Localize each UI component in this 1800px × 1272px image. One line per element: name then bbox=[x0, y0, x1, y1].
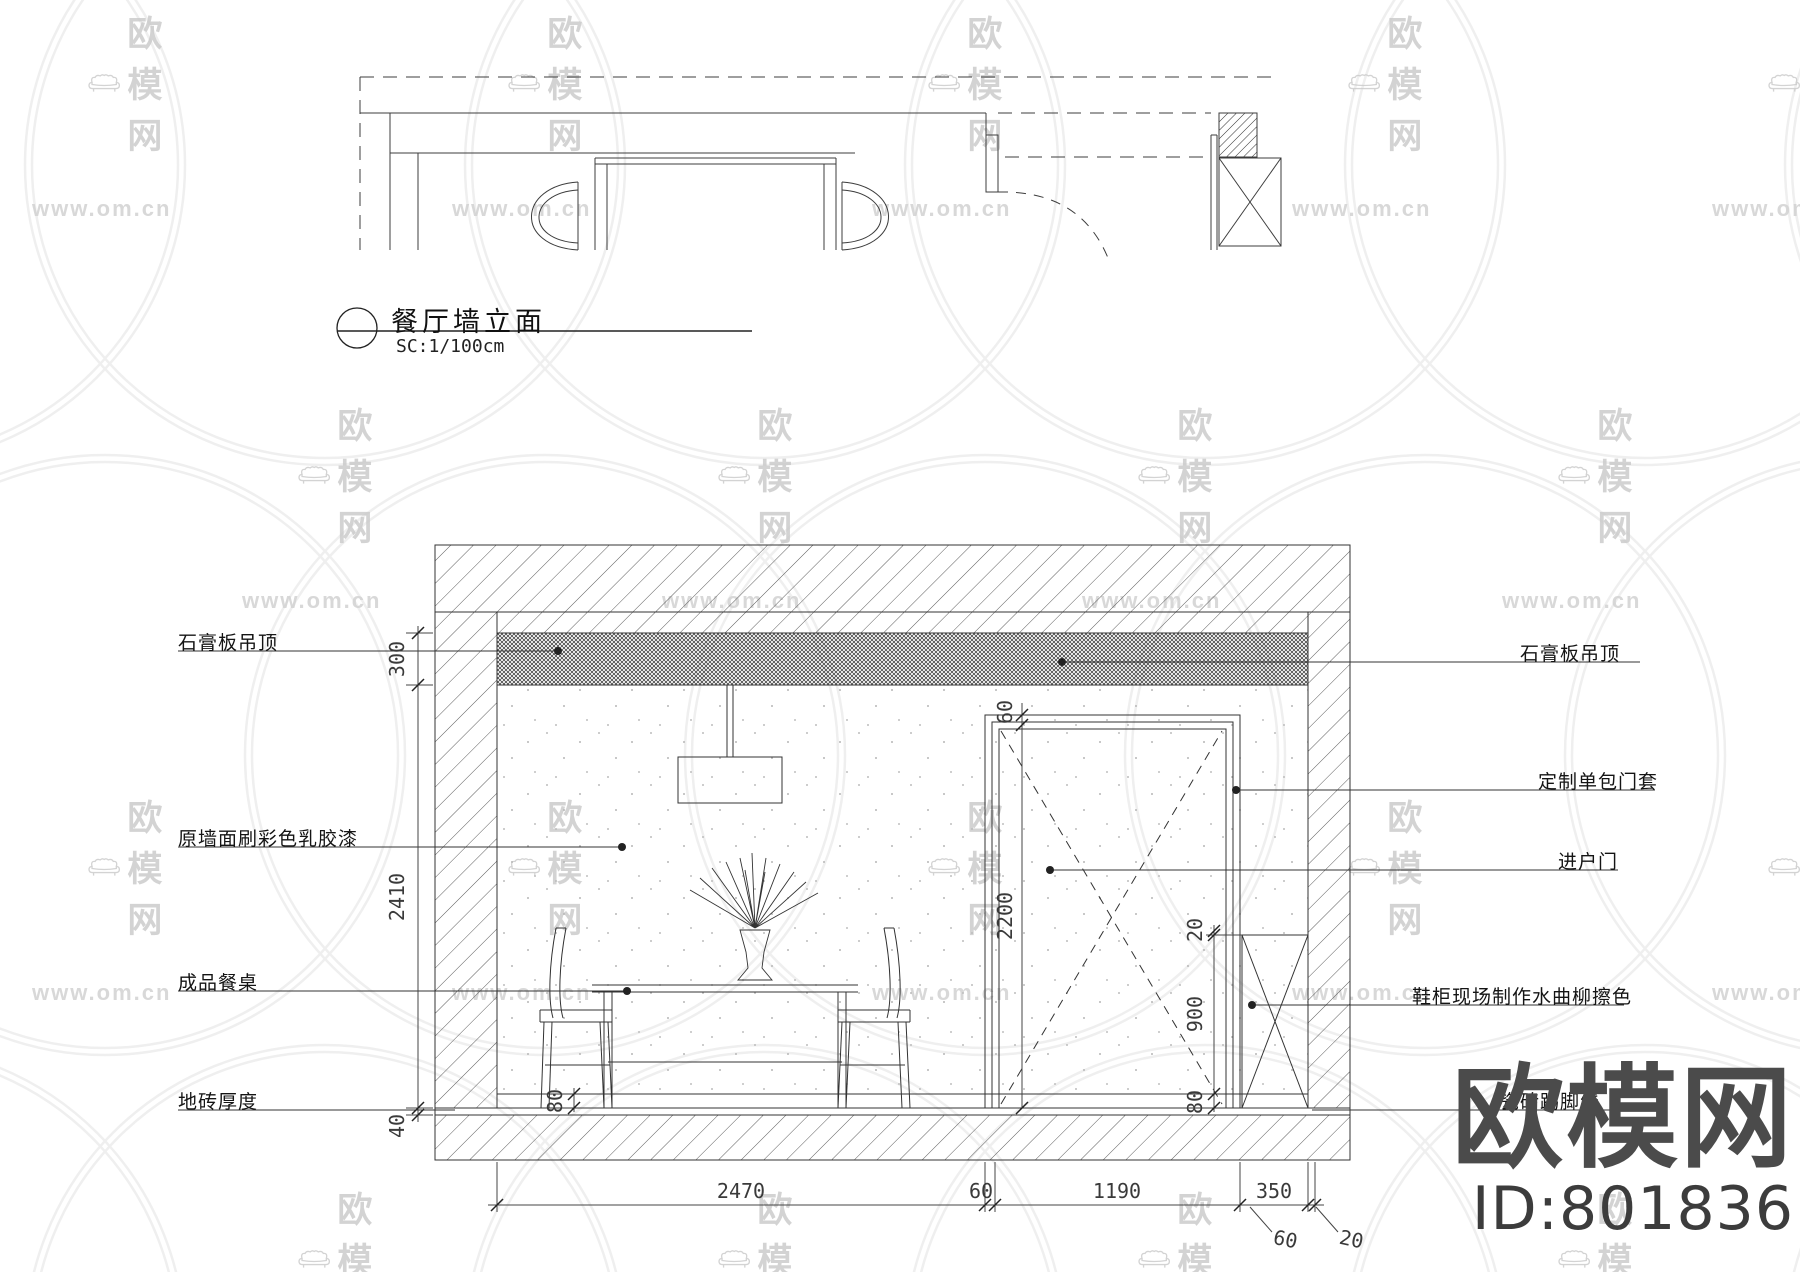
dim-tile-thickness: 40 bbox=[385, 1114, 409, 1138]
plan-chair-right bbox=[842, 182, 889, 250]
label-dining-table: 成品餐桌 bbox=[178, 968, 258, 995]
detail-bubble-icon bbox=[337, 308, 377, 348]
plan-view bbox=[360, 77, 1281, 258]
plan-entry-door bbox=[986, 113, 1108, 258]
dim-skirting-left: 80 bbox=[543, 1089, 567, 1113]
dim-bottom-3: 1190 bbox=[1093, 1179, 1141, 1203]
plan-cabinet-box bbox=[1219, 158, 1281, 246]
top-slab-hatch bbox=[435, 545, 1350, 612]
label-shoe-cabinet: 鞋柜现场制作水曲柳擦色 bbox=[1412, 982, 1632, 1009]
dim-bottom-sub-1: 60 bbox=[1271, 1225, 1300, 1253]
label-wall-paint: 原墙面刷彩色乳胶漆 bbox=[178, 824, 358, 851]
floor-slab-hatch bbox=[435, 1115, 1350, 1160]
dim-bottom-1: 2470 bbox=[717, 1179, 765, 1203]
dim-skirting-right: 80 bbox=[1183, 1090, 1207, 1114]
dim-wall-height: 2410 bbox=[385, 873, 409, 921]
drawing-scale: SC:1/100cm bbox=[396, 336, 504, 357]
dim-bottom-sub-2: 20 bbox=[1337, 1225, 1366, 1253]
plan-chair-left bbox=[531, 182, 578, 250]
left-wall-hatch bbox=[435, 612, 497, 1108]
dim-cabinet-height: 900 bbox=[1183, 996, 1207, 1032]
dim-bottom-4: 350 bbox=[1256, 1179, 1292, 1203]
label-door-casing: 定制单包门套 bbox=[1538, 767, 1658, 794]
drawing-title: 餐厅墙立面 bbox=[391, 300, 546, 339]
gypsum-ceiling-band bbox=[497, 633, 1308, 685]
cad-sheet: 欧模网欧模网欧模网欧模网欧模网欧模网欧模网欧模网欧模网欧模网欧模网欧模网欧模网欧… bbox=[0, 0, 1800, 1272]
dim-door-frame: 60 bbox=[993, 700, 1017, 724]
label-gypsum-ceiling-left: 石膏板吊顶 bbox=[178, 628, 278, 655]
dim-bottom-2: 60 bbox=[969, 1179, 993, 1203]
dim-cabinet-gap: 20 bbox=[1183, 918, 1207, 942]
label-gypsum-ceiling-right: 石膏板吊顶 bbox=[1520, 639, 1620, 666]
elevation-view bbox=[435, 545, 1350, 1160]
label-skirting: 瓷砖踢脚线 bbox=[1500, 1087, 1600, 1114]
ceiling-strip-hatch bbox=[497, 612, 1308, 633]
dim-door-height: 2200 bbox=[993, 892, 1017, 940]
right-wall-hatch bbox=[1308, 612, 1350, 1108]
dim-ceiling-drop: 300 bbox=[385, 641, 409, 677]
plan-dining-table bbox=[595, 158, 836, 250]
label-entry-door: 进户门 bbox=[1558, 847, 1618, 874]
plan-column-hatch bbox=[1219, 113, 1257, 157]
label-floor-tile: 地砖厚度 bbox=[178, 1087, 258, 1114]
